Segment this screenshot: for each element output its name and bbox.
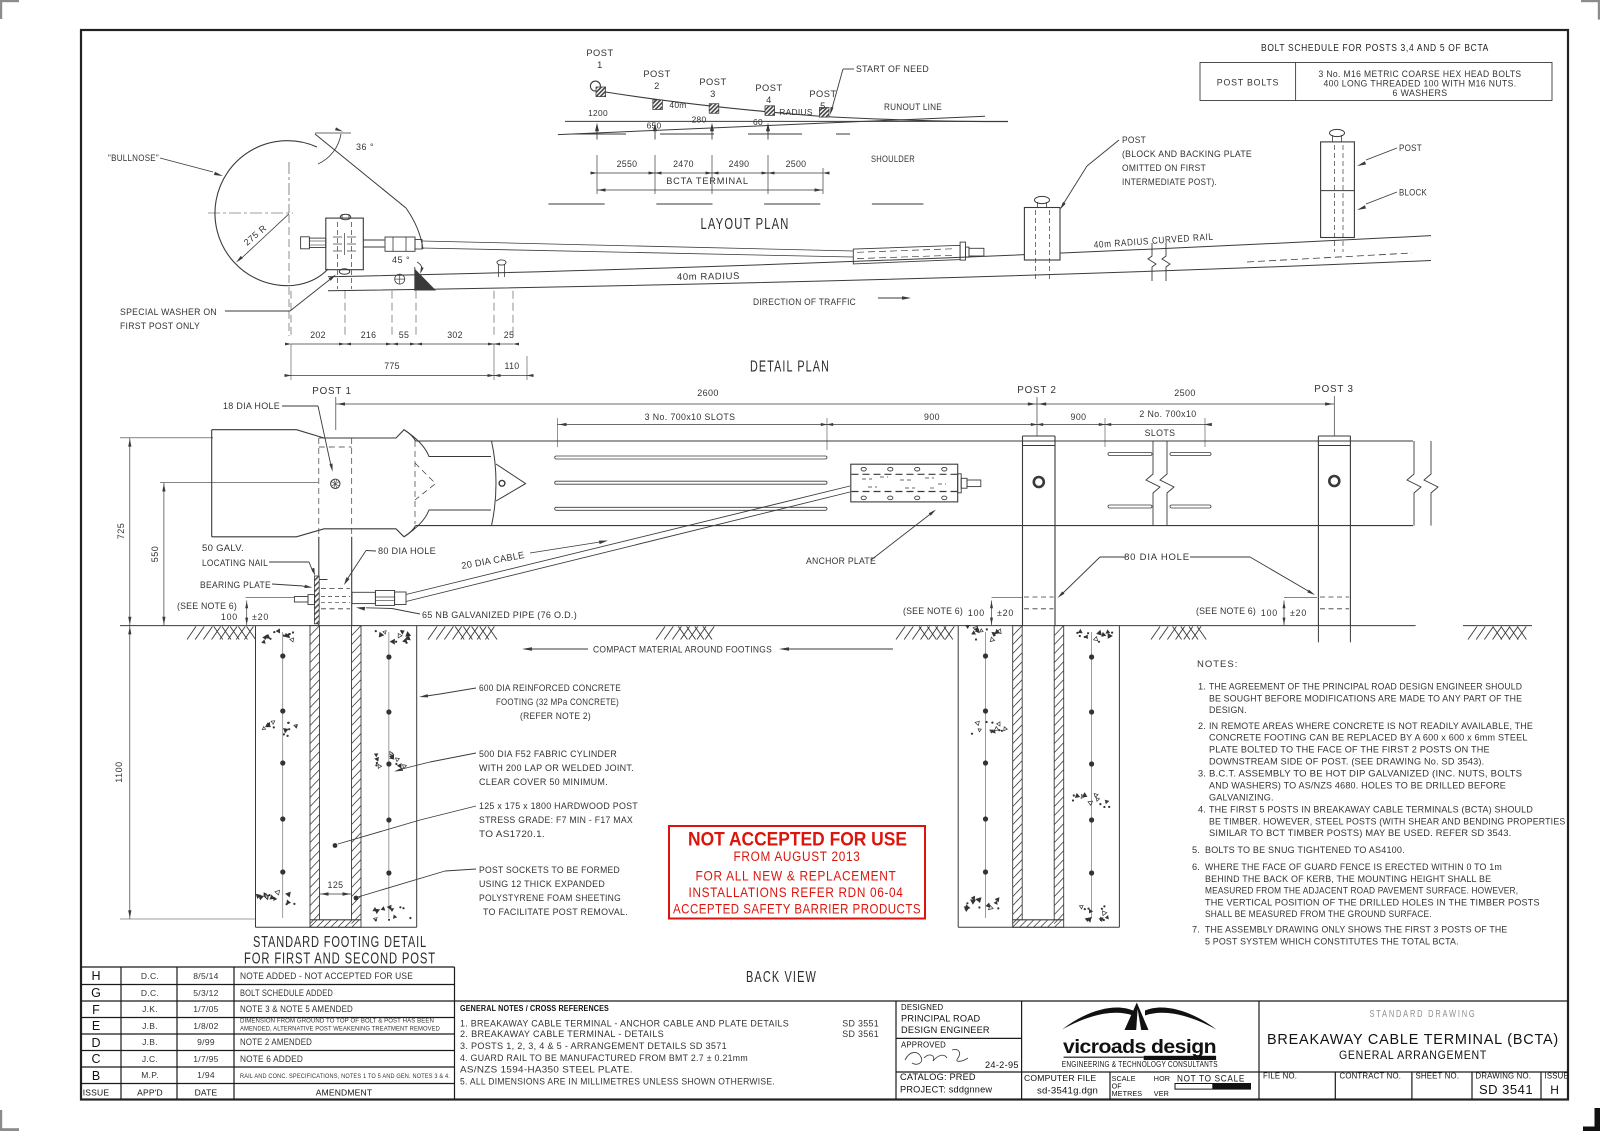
svg-text:18 DIA HOLE: 18 DIA HOLE (223, 401, 280, 412)
svg-text:THE FIRST 5 POSTS IN BREAKAWAY: THE FIRST 5 POSTS IN BREAKAWAY CABLE TER… (1209, 805, 1533, 815)
svg-text:5/3/12: 5/3/12 (193, 988, 218, 998)
svg-text:80 DIA HOLE: 80 DIA HOLE (378, 546, 436, 557)
svg-text:FILE NO.: FILE NO. (1263, 1072, 1297, 1081)
svg-text:SPECIAL WASHER ON: SPECIAL WASHER ON (120, 307, 217, 318)
svg-text:WITH 200 LAP OR WELDED JOINT.: WITH 200 LAP OR WELDED JOINT. (479, 763, 634, 774)
svg-text:DESIGNED: DESIGNED (901, 1003, 943, 1012)
svg-text:STRESS GRADE: F7 MIN - F17 MAX: STRESS GRADE: F7 MIN - F17 MAX (479, 815, 633, 826)
svg-text:9/99: 9/99 (197, 1037, 215, 1047)
svg-text:±20: ±20 (997, 608, 1014, 618)
svg-text:B: B (92, 1069, 100, 1083)
svg-text:AS/NZS 1594-HA350 STEEL PLATE.: AS/NZS 1594-HA350 STEEL PLATE. (460, 1064, 633, 1074)
svg-text:FOR ALL NEW & REPLACEMENT: FOR ALL NEW & REPLACEMENT (696, 868, 897, 884)
svg-text:RADIUS: RADIUS (779, 107, 813, 117)
svg-text:STANDARD FOOTING DETAIL: STANDARD FOOTING DETAIL (253, 934, 427, 951)
svg-text:NOT TO SCALE: NOT TO SCALE (1177, 1073, 1245, 1084)
svg-text:POST SOCKETS TO BE FORMED: POST SOCKETS TO BE FORMED (479, 865, 620, 876)
svg-text:POST: POST (643, 69, 670, 79)
svg-text:CONTRACT NO.: CONTRACT NO. (1340, 1072, 1402, 1081)
svg-text:125 x 175 x 1800 HARDWOOD POST: 125 x 175 x 1800 HARDWOOD POST (479, 801, 638, 812)
svg-text:FOR FIRST AND SECOND POST: FOR FIRST AND SECOND POST (244, 951, 436, 968)
svg-text:LOCATING NAIL: LOCATING NAIL (202, 558, 268, 569)
svg-text:4.: 4. (1198, 805, 1206, 815)
svg-text:BCTA TERMINAL: BCTA TERMINAL (666, 176, 749, 186)
svg-text:POST: POST (586, 48, 613, 58)
svg-text:NOTES:: NOTES: (1197, 659, 1238, 670)
svg-text:900: 900 (1071, 412, 1087, 422)
svg-text:SHEET NO.: SHEET NO. (1416, 1072, 1460, 1081)
svg-text:GENERAL ARRANGEMENT: GENERAL ARRANGEMENT (1339, 1048, 1487, 1062)
svg-text:TO FACILITATE POST REMOVAL.: TO FACILITATE POST REMOVAL. (483, 907, 628, 918)
svg-text:2470: 2470 (673, 159, 694, 169)
svg-text:DIMENSION FROM GROUND TO TOP O: DIMENSION FROM GROUND TO TOP OF BOLT & P… (240, 1018, 434, 1025)
svg-text:THE VERTICAL POSITION OF THE D: THE VERTICAL POSITION OF THE DRILLED HOL… (1205, 897, 1540, 907)
svg-text:±20: ±20 (1290, 608, 1307, 618)
svg-text:E: E (92, 1019, 100, 1033)
svg-text:SIMILAR TO BCT TIMBER POSTS) M: SIMILAR TO BCT TIMBER POSTS) MAY BE USED… (1209, 828, 1511, 838)
svg-text:FROM AUGUST 2013: FROM AUGUST 2013 (734, 849, 861, 864)
svg-text:ISSUE: ISSUE (83, 1088, 110, 1098)
svg-text:2490: 2490 (729, 159, 750, 169)
svg-text:OMITTED ON FIRST: OMITTED ON FIRST (1122, 163, 1206, 174)
svg-text:LAYOUT PLAN: LAYOUT PLAN (701, 216, 790, 233)
svg-text:25: 25 (504, 330, 514, 340)
svg-text:(BLOCK AND BACKING PLATE: (BLOCK AND BACKING PLATE (1122, 149, 1252, 160)
svg-text:40m RADIUS: 40m RADIUS (677, 271, 740, 283)
svg-text:302: 302 (447, 330, 463, 340)
svg-text:3. POSTS 1, 2, 3, 4 & 5 - ARRA: 3. POSTS 1, 2, 3, 4 & 5 - ARRANGEMENT DE… (460, 1041, 727, 1051)
svg-text:APP'D: APP'D (137, 1088, 163, 1098)
svg-text:AMENDED, ALTERNATIVE POST WEAK: AMENDED, ALTERNATIVE POST WEAKENING TREA… (240, 1026, 440, 1033)
svg-text:2 No. 700x10: 2 No. 700x10 (1139, 409, 1196, 419)
svg-text:100: 100 (968, 608, 985, 618)
svg-text:1: 1 (597, 60, 603, 70)
svg-text:4: 4 (766, 95, 772, 105)
svg-text:SHOULDER: SHOULDER (871, 154, 915, 165)
svg-text:BREAKAWAY CABLE TERMINAL (BCTA: BREAKAWAY CABLE TERMINAL (BCTA) (1267, 1032, 1559, 1048)
svg-text:COMPACT MATERIAL AROUND FOOTIN: COMPACT MATERIAL AROUND FOOTINGS (593, 645, 772, 655)
svg-text:8/5/14: 8/5/14 (193, 971, 218, 981)
svg-text:CLEAR COVER 50 MINIMUM.: CLEAR COVER 50 MINIMUM. (479, 777, 608, 788)
svg-text:J.B.: J.B. (142, 1037, 158, 1047)
svg-text:55: 55 (399, 330, 409, 340)
svg-text:FIRST POST ONLY: FIRST POST ONLY (120, 321, 200, 332)
svg-text:(SEE NOTE 6): (SEE NOTE 6) (903, 606, 963, 616)
svg-text:BEARING PLATE: BEARING PLATE (200, 580, 271, 591)
svg-text:725: 725 (116, 523, 126, 540)
svg-text:AND WASHERS) TO AS/NZS 4680. H: AND WASHERS) TO AS/NZS 4680. HOLES TO BE… (1209, 781, 1506, 791)
svg-text:2550: 2550 (617, 159, 638, 169)
svg-text:24-2-95: 24-2-95 (985, 1060, 1019, 1070)
svg-text:FOOTING (32 MPa CONCRETE): FOOTING (32 MPa CONCRETE) (496, 697, 619, 708)
svg-text:2.: 2. (1198, 721, 1206, 731)
svg-text:1/94: 1/94 (197, 1070, 215, 1080)
svg-text:CATALOG: PRED: CATALOG: PRED (900, 1072, 976, 1082)
svg-text:5.: 5. (1192, 845, 1200, 855)
svg-text:50 GALV.: 50 GALV. (202, 543, 244, 554)
svg-text:3 No. 700x10 SLOTS: 3 No. 700x10 SLOTS (645, 412, 736, 422)
svg-text:5. ALL DIMENSIONS ARE IN MILLI: 5. ALL DIMENSIONS ARE IN MILLIMETRES UNL… (460, 1076, 775, 1086)
svg-text:6.: 6. (1192, 862, 1200, 872)
svg-text:POST: POST (1122, 135, 1146, 146)
svg-text:NOTE 2 AMENDED: NOTE 2 AMENDED (240, 1037, 312, 1047)
svg-text:1. BREAKAWAY CABLE TERMINAL -: 1. BREAKAWAY CABLE TERMINAL - ANCHOR CAB… (460, 1018, 789, 1028)
svg-text:PRINCIPAL ROAD: PRINCIPAL ROAD (901, 1014, 981, 1024)
svg-text:BEHIND THE BACK OF KERB, THE M: BEHIND THE BACK OF KERB, THE MOUNTING HE… (1205, 874, 1491, 884)
svg-text:B.C.T. ASSEMBLY TO BE HOT DIP: B.C.T. ASSEMBLY TO BE HOT DIP GALVANIZED… (1209, 769, 1522, 779)
svg-text:HOR: HOR (1154, 1074, 1170, 1083)
svg-text:M.P.: M.P. (141, 1070, 159, 1080)
svg-text:2500: 2500 (786, 159, 807, 169)
svg-text:TO AS1720.1.: TO AS1720.1. (479, 829, 545, 840)
svg-text:F: F (92, 1003, 100, 1017)
svg-text:INSTALLATIONS REFER RDN 06-04: INSTALLATIONS REFER RDN 06-04 (689, 884, 904, 900)
svg-text:ACCEPTED SAFETY BARRIER PRODUC: ACCEPTED SAFETY BARRIER PRODUCTS (673, 901, 921, 917)
svg-text:J.K.: J.K. (142, 1004, 158, 1014)
svg-text:3: 3 (710, 89, 716, 99)
svg-text:SD 3551: SD 3551 (842, 1018, 879, 1028)
svg-text:600 DIA REINFORCED CONCRETE: 600 DIA REINFORCED CONCRETE (479, 683, 621, 694)
svg-text:500 DIA F52 FABRIC CYLINDER: 500 DIA F52 FABRIC CYLINDER (479, 749, 617, 760)
svg-text:DESIGN.: DESIGN. (1209, 705, 1247, 715)
svg-text:280: 280 (692, 115, 707, 125)
svg-text:THE ASSEMBLY DRAWING ONLY SHOW: THE ASSEMBLY DRAWING ONLY SHOWS THE FIRS… (1205, 925, 1507, 935)
svg-text:DIRECTION OF TRAFFIC: DIRECTION OF TRAFFIC (753, 297, 856, 308)
svg-text:80 DIA HOLE: 80 DIA HOLE (1124, 552, 1190, 563)
svg-text:RAIL AND CONC. SPECIFICATIONS,: RAIL AND CONC. SPECIFICATIONS, NOTES 1 T… (240, 1073, 450, 1080)
svg-text:D: D (91, 1036, 100, 1050)
svg-text:POST: POST (1399, 143, 1422, 154)
svg-text:100: 100 (1261, 608, 1278, 618)
svg-text:(SEE NOTE 6): (SEE NOTE 6) (1196, 606, 1256, 616)
svg-text:POST: POST (699, 77, 726, 87)
svg-text:1.: 1. (1198, 682, 1206, 692)
svg-text:J.C.: J.C. (142, 1054, 158, 1064)
svg-text:"BULLNOSE": "BULLNOSE" (108, 153, 159, 164)
svg-text:60: 60 (753, 117, 763, 127)
svg-text:2. BREAKAWAY CABLE TERMINAL -: 2. BREAKAWAY CABLE TERMINAL - DETAILS (460, 1029, 664, 1039)
svg-text:1/8/02: 1/8/02 (193, 1021, 218, 1031)
svg-text:USING 12 THICK EXPANDED: USING 12 THICK EXPANDED (479, 879, 605, 890)
svg-text:PROJECT: sddgnnew: PROJECT: sddgnnew (900, 1085, 992, 1095)
svg-text:1/7/95: 1/7/95 (193, 1054, 218, 1064)
svg-text:2600: 2600 (697, 388, 719, 398)
svg-text:202: 202 (310, 330, 326, 340)
svg-text:3 No. M16 METRIC COARSE HEX HE: 3 No. M16 METRIC COARSE HEX HEAD BOLTS (1319, 69, 1522, 79)
svg-text:DATE: DATE (195, 1088, 218, 1098)
svg-text:±20: ±20 (252, 612, 269, 622)
svg-text:SD 3541: SD 3541 (1479, 1082, 1533, 1097)
svg-text:THE AGREEMENT OF THE PRINCIPAL: THE AGREEMENT OF THE PRINCIPAL ROAD DESI… (1209, 682, 1522, 692)
svg-text:VER: VER (1154, 1089, 1169, 1098)
svg-text:BLOCK: BLOCK (1399, 188, 1427, 199)
svg-text:WHERE THE FACE OF GUARD FENCE: WHERE THE FACE OF GUARD FENCE IS ERECTED… (1205, 862, 1502, 872)
svg-text:CONCRETE FOOTING CAN BE REPLAC: CONCRETE FOOTING CAN BE REPLACED BY A 60… (1209, 733, 1528, 743)
svg-text:vicroads design: vicroads design (1063, 1037, 1216, 1058)
svg-text:216: 216 (361, 330, 377, 340)
svg-text:1100: 1100 (114, 761, 124, 782)
svg-text:5 POST SYSTEM WHICH CONSTITUTE: 5 POST SYSTEM WHICH CONSTITUTES THE TOTA… (1205, 937, 1459, 947)
svg-text:(REFER NOTE 2): (REFER NOTE 2) (520, 711, 591, 722)
svg-text:J.B.: J.B. (142, 1021, 158, 1031)
svg-text:5: 5 (820, 101, 826, 111)
svg-text:900: 900 (924, 412, 940, 422)
svg-text:45 °: 45 ° (392, 255, 410, 265)
svg-text:D.C.: D.C. (141, 988, 159, 998)
svg-text:4. GUARD RAIL TO BE MANUFACTUR: 4. GUARD RAIL TO BE MANUFACTURED FROM BM… (460, 1053, 748, 1063)
svg-text:110: 110 (505, 361, 520, 371)
svg-text:1200: 1200 (588, 108, 608, 118)
svg-text:BOLT SCHEDULE ADDED: BOLT SCHEDULE ADDED (240, 988, 333, 998)
svg-text:100: 100 (221, 612, 238, 622)
svg-text:SLOTS: SLOTS (1145, 428, 1176, 438)
svg-text:SD 3561: SD 3561 (842, 1029, 879, 1039)
svg-text:BOLT SCHEDULE FOR POSTS 3,4 AN: BOLT SCHEDULE FOR POSTS 3,4 AND 5 OF BCT… (1261, 43, 1489, 54)
svg-text:40m: 40m (669, 100, 686, 110)
svg-text:DESIGN ENGINEER: DESIGN ENGINEER (901, 1025, 990, 1035)
svg-text:METRES: METRES (1112, 1089, 1143, 1098)
svg-text:POST 2: POST 2 (1017, 385, 1056, 396)
svg-text:POLYSTYRENE FOAM SHEETING: POLYSTYRENE FOAM SHEETING (479, 893, 621, 904)
svg-text:POST: POST (755, 83, 782, 93)
svg-text:POST BOLTS: POST BOLTS (1217, 78, 1279, 88)
svg-text:775: 775 (384, 361, 400, 371)
svg-text:POST 3: POST 3 (1314, 384, 1353, 395)
svg-text:POST 1: POST 1 (312, 386, 351, 397)
svg-text:2500: 2500 (1174, 388, 1196, 398)
svg-text:3.: 3. (1198, 769, 1206, 779)
svg-text:DETAIL PLAN: DETAIL PLAN (750, 359, 830, 376)
svg-text:RUNOUT LINE: RUNOUT LINE (884, 102, 942, 113)
svg-text:GENERAL NOTES / CROSS REFERENC: GENERAL NOTES / CROSS REFERENCES (460, 1003, 609, 1013)
svg-text:65 NB GALVANIZED PIPE (76 O.D.: 65 NB GALVANIZED PIPE (76 O.D.) (422, 610, 577, 621)
svg-text:IN REMOTE AREAS WHERE CONCRETE: IN REMOTE AREAS WHERE CONCRETE IS NOT RE… (1209, 721, 1533, 731)
svg-text:125: 125 (328, 880, 344, 890)
svg-text:MEASURED FROM THE ADJACENT ROA: MEASURED FROM THE ADJACENT ROAD PAVEMENT… (1205, 886, 1518, 896)
svg-text:BOLTS TO BE SNUG TIGHTENED TO: BOLTS TO BE SNUG TIGHTENED TO AS4100. (1205, 845, 1405, 855)
svg-text:INTERMEDIATE POST).: INTERMEDIATE POST). (1122, 177, 1217, 188)
svg-text:(SEE NOTE 6): (SEE NOTE 6) (177, 601, 237, 611)
svg-text:DOWNSTREAM SIDE OF POST. (SEE: DOWNSTREAM SIDE OF POST. (SEE DRAWING No… (1209, 756, 1484, 766)
svg-text:NOTE 3 & NOTE 5 AMENDED: NOTE 3 & NOTE 5 AMENDED (240, 1004, 353, 1014)
svg-text:6 WASHERS: 6 WASHERS (1392, 88, 1447, 98)
svg-text:H: H (91, 969, 100, 983)
svg-text:DRAWING NO.: DRAWING NO. (1476, 1072, 1532, 1081)
svg-text:STANDARD DRAWING: STANDARD DRAWING (1370, 1009, 1477, 1020)
svg-text:APPROVED: APPROVED (901, 1041, 946, 1050)
svg-text:BACK VIEW: BACK VIEW (746, 969, 817, 986)
svg-text:AMENDMENT: AMENDMENT (316, 1088, 373, 1098)
svg-text:1/7/05: 1/7/05 (193, 1004, 218, 1014)
svg-text:ENGINEERING & TECHNOLOGY CONSU: ENGINEERING & TECHNOLOGY CONSULTANTS (1062, 1060, 1218, 1069)
svg-text:START OF NEED: START OF NEED (856, 64, 929, 75)
svg-text:7.: 7. (1192, 925, 1200, 935)
svg-text:BE SOUGHT BEFORE MODIFICATIONS: BE SOUGHT BEFORE MODIFICATIONS ARE MADE … (1209, 693, 1522, 703)
svg-text:ANCHOR PLATE: ANCHOR PLATE (806, 556, 876, 567)
svg-text:NOT ACCEPTED FOR USE: NOT ACCEPTED FOR USE (688, 829, 907, 851)
svg-text:2: 2 (654, 81, 660, 91)
svg-text:sd-3541g.dgn: sd-3541g.dgn (1037, 1086, 1098, 1097)
svg-text:BE TIMBER. HOWEVER, STEEL POST: BE TIMBER. HOWEVER, STEEL POSTS (WITH SH… (1209, 816, 1565, 826)
svg-text:H: H (1550, 1083, 1559, 1097)
svg-text:PLATE BOLTED TO THE FACE OF TH: PLATE BOLTED TO THE FACE OF THE FIRST 2 … (1209, 745, 1490, 755)
svg-text:POST: POST (809, 89, 836, 99)
svg-text:G: G (91, 986, 101, 1000)
svg-text:D.C.: D.C. (141, 971, 159, 981)
svg-text:400 LONG THREADED 100 WITH M16: 400 LONG THREADED 100 WITH M16 NUTS. (1324, 79, 1517, 89)
svg-text:550: 550 (150, 546, 160, 563)
svg-text:NOTE 6 ADDED: NOTE 6 ADDED (240, 1054, 303, 1064)
svg-text:SHALL BE MEASURED FROM THE GRO: SHALL BE MEASURED FROM THE GROUND SURFAC… (1205, 909, 1432, 919)
svg-text:NOTE ADDED - NOT ACCEPTED FOR: NOTE ADDED - NOT ACCEPTED FOR USE (240, 971, 413, 981)
svg-text:C: C (91, 1052, 100, 1066)
svg-text:36 °: 36 ° (356, 142, 374, 152)
svg-text:GALVANIZING.: GALVANIZING. (1209, 792, 1274, 802)
svg-text:COMPUTER FILE: COMPUTER FILE (1024, 1073, 1096, 1083)
svg-text:ISSUE: ISSUE (1545, 1072, 1569, 1081)
